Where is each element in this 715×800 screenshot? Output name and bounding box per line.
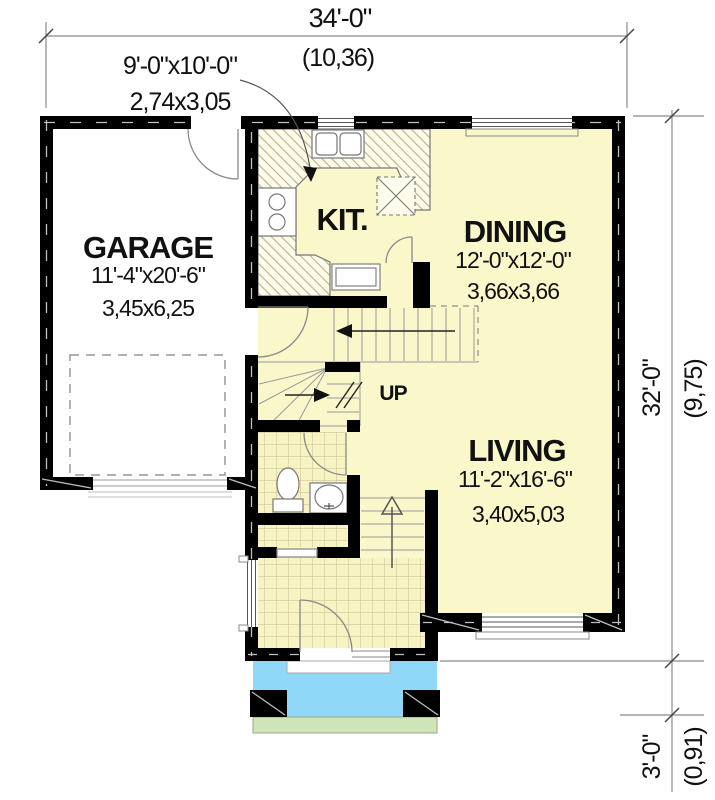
living-label: LIVING: [468, 433, 565, 468]
dim-top-imperial: 34'-0": [309, 3, 372, 33]
dining-label: DINING: [464, 214, 567, 249]
wall-foyer-top-left: [258, 547, 277, 558]
wall-entry-stair-left: [348, 495, 360, 558]
dim-top-metric: (10,36): [302, 44, 374, 72]
dining-size-imperial: 12'-0"x12'-0": [455, 247, 572, 273]
wall-kitchen-stub: [413, 262, 430, 308]
wall-kitchen-bottom: [245, 296, 387, 308]
porch-stoop: [287, 661, 390, 673]
foyer-tile: [258, 558, 425, 648]
garage-size-imperial: 11'-4"x20'-6": [91, 262, 206, 288]
wall-stair-stub: [325, 362, 360, 372]
kitchen-range: [258, 188, 296, 236]
wall-bath-right-stub: [347, 420, 360, 432]
wall-right: [612, 116, 625, 632]
kitchen-size-imperial: 9'-0"x10'-0": [123, 52, 237, 80]
dim-porch-metric: (0,91): [680, 727, 708, 786]
garage-label: GARAGE: [83, 230, 213, 265]
dim-right-imperial: 32'-0": [638, 359, 666, 417]
floor-plan-page: 34'-0" (10,36) 9'-0"x10'-0" 2,74x3,05 GA…: [0, 0, 715, 800]
kitchen-label: KIT.: [316, 202, 367, 237]
garage-size-metric: 3,45x6,25: [102, 295, 194, 321]
porch-lawn-strip: [253, 717, 437, 733]
wall-foyer-right: [425, 490, 438, 661]
kitchen-size-metric: 2,74x3,05: [130, 88, 231, 116]
dining-size-metric: 3,66x3,66: [467, 278, 559, 304]
up-label: UP: [379, 382, 407, 405]
hall-closet-tile: [258, 525, 347, 547]
toilet-bowl: [277, 468, 299, 500]
wall-bath-bottom: [245, 513, 360, 525]
wall-bath-top: [258, 420, 320, 432]
kitchen-peninsula: [332, 264, 380, 290]
kitchen-window: [318, 117, 354, 128]
dim-porch-imperial: 3'-0": [638, 734, 666, 779]
living-size-metric: 3,40x5,03: [472, 501, 564, 527]
floor-plan-drawing: 34'-0" (10,36) 9'-0"x10'-0" 2,74x3,05 GA…: [0, 0, 715, 800]
toilet-tank: [273, 499, 303, 512]
closet-door: [277, 549, 317, 557]
kitchen-island: [377, 177, 415, 215]
living-size-imperial: 11'-2"x16'-6": [458, 466, 573, 492]
wall-top-garage: [40, 116, 191, 129]
kitchen-sink: [312, 130, 364, 158]
dim-right-metric: (9,75): [680, 359, 708, 418]
